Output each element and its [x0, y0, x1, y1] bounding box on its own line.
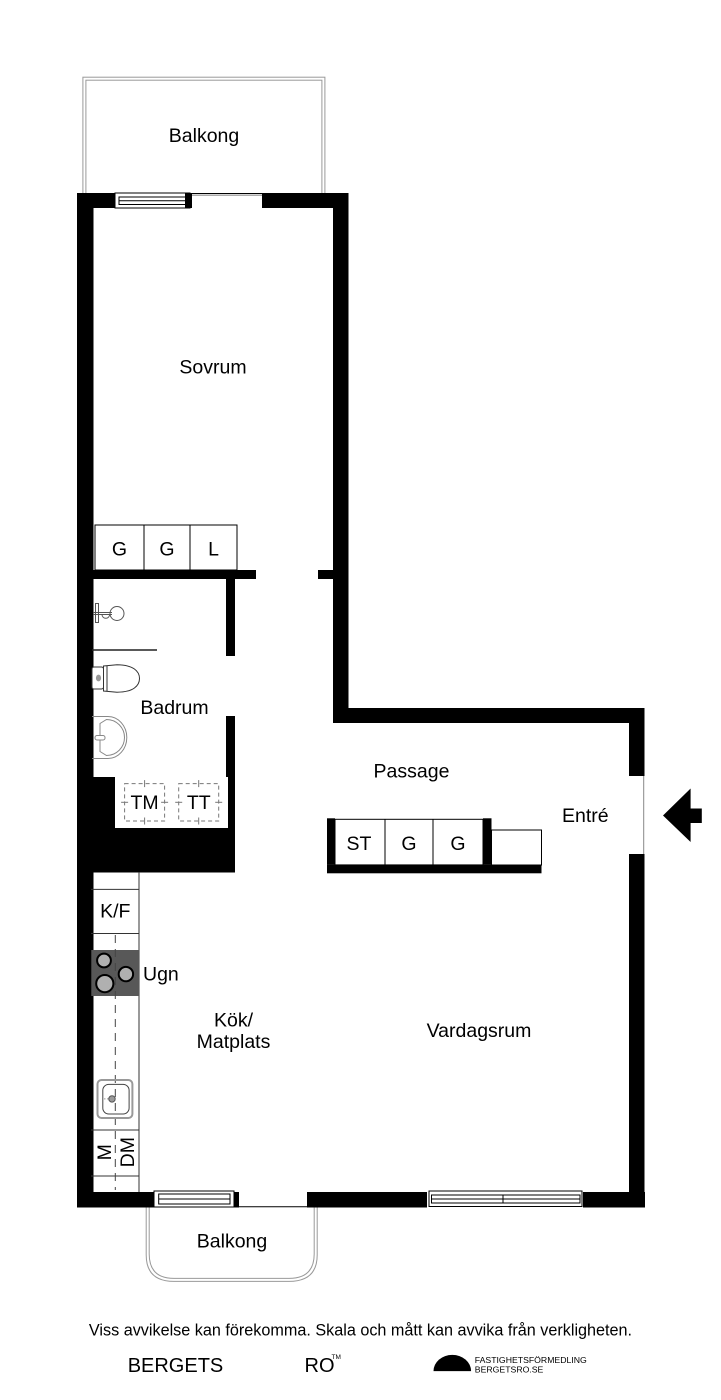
svg-text:G: G — [112, 539, 127, 561]
svg-text:Balkong: Balkong — [197, 1231, 267, 1253]
svg-text:G: G — [159, 539, 174, 561]
svg-text:L: L — [208, 539, 219, 561]
svg-text:TM: TM — [131, 792, 159, 814]
svg-text:Balkong: Balkong — [169, 125, 239, 147]
svg-text:TT: TT — [187, 792, 211, 814]
svg-text:TM: TM — [332, 1354, 341, 1361]
svg-text:BERGETS: BERGETS — [128, 1355, 224, 1377]
svg-text:Sovrum: Sovrum — [179, 357, 246, 379]
svg-text:G: G — [450, 833, 465, 855]
svg-text:K/F: K/F — [100, 901, 130, 923]
svg-text:Badrum: Badrum — [140, 697, 208, 719]
svg-text:Viss avvikelse kan förekomma.: Viss avvikelse kan förekomma. Skala och … — [89, 1322, 632, 1340]
svg-text:ST: ST — [347, 833, 372, 855]
svg-text:RO: RO — [305, 1355, 335, 1377]
svg-text:G: G — [401, 833, 416, 855]
svg-text:FASTIGHETSFÖRMEDLING: FASTIGHETSFÖRMEDLING — [475, 1355, 587, 1365]
svg-text:DM: DM — [117, 1137, 139, 1167]
svg-text:Vardagsrum: Vardagsrum — [427, 1020, 532, 1042]
svg-text:Passage: Passage — [374, 760, 450, 782]
svg-text:M: M — [94, 1144, 116, 1160]
svg-text:Kök/: Kök/ — [214, 1010, 254, 1032]
svg-text:Entré: Entré — [562, 805, 609, 827]
svg-text:Ugn: Ugn — [143, 963, 179, 985]
svg-text:Matplats: Matplats — [197, 1031, 271, 1053]
svg-text:BERGETSRO.SE: BERGETSRO.SE — [475, 1364, 544, 1374]
